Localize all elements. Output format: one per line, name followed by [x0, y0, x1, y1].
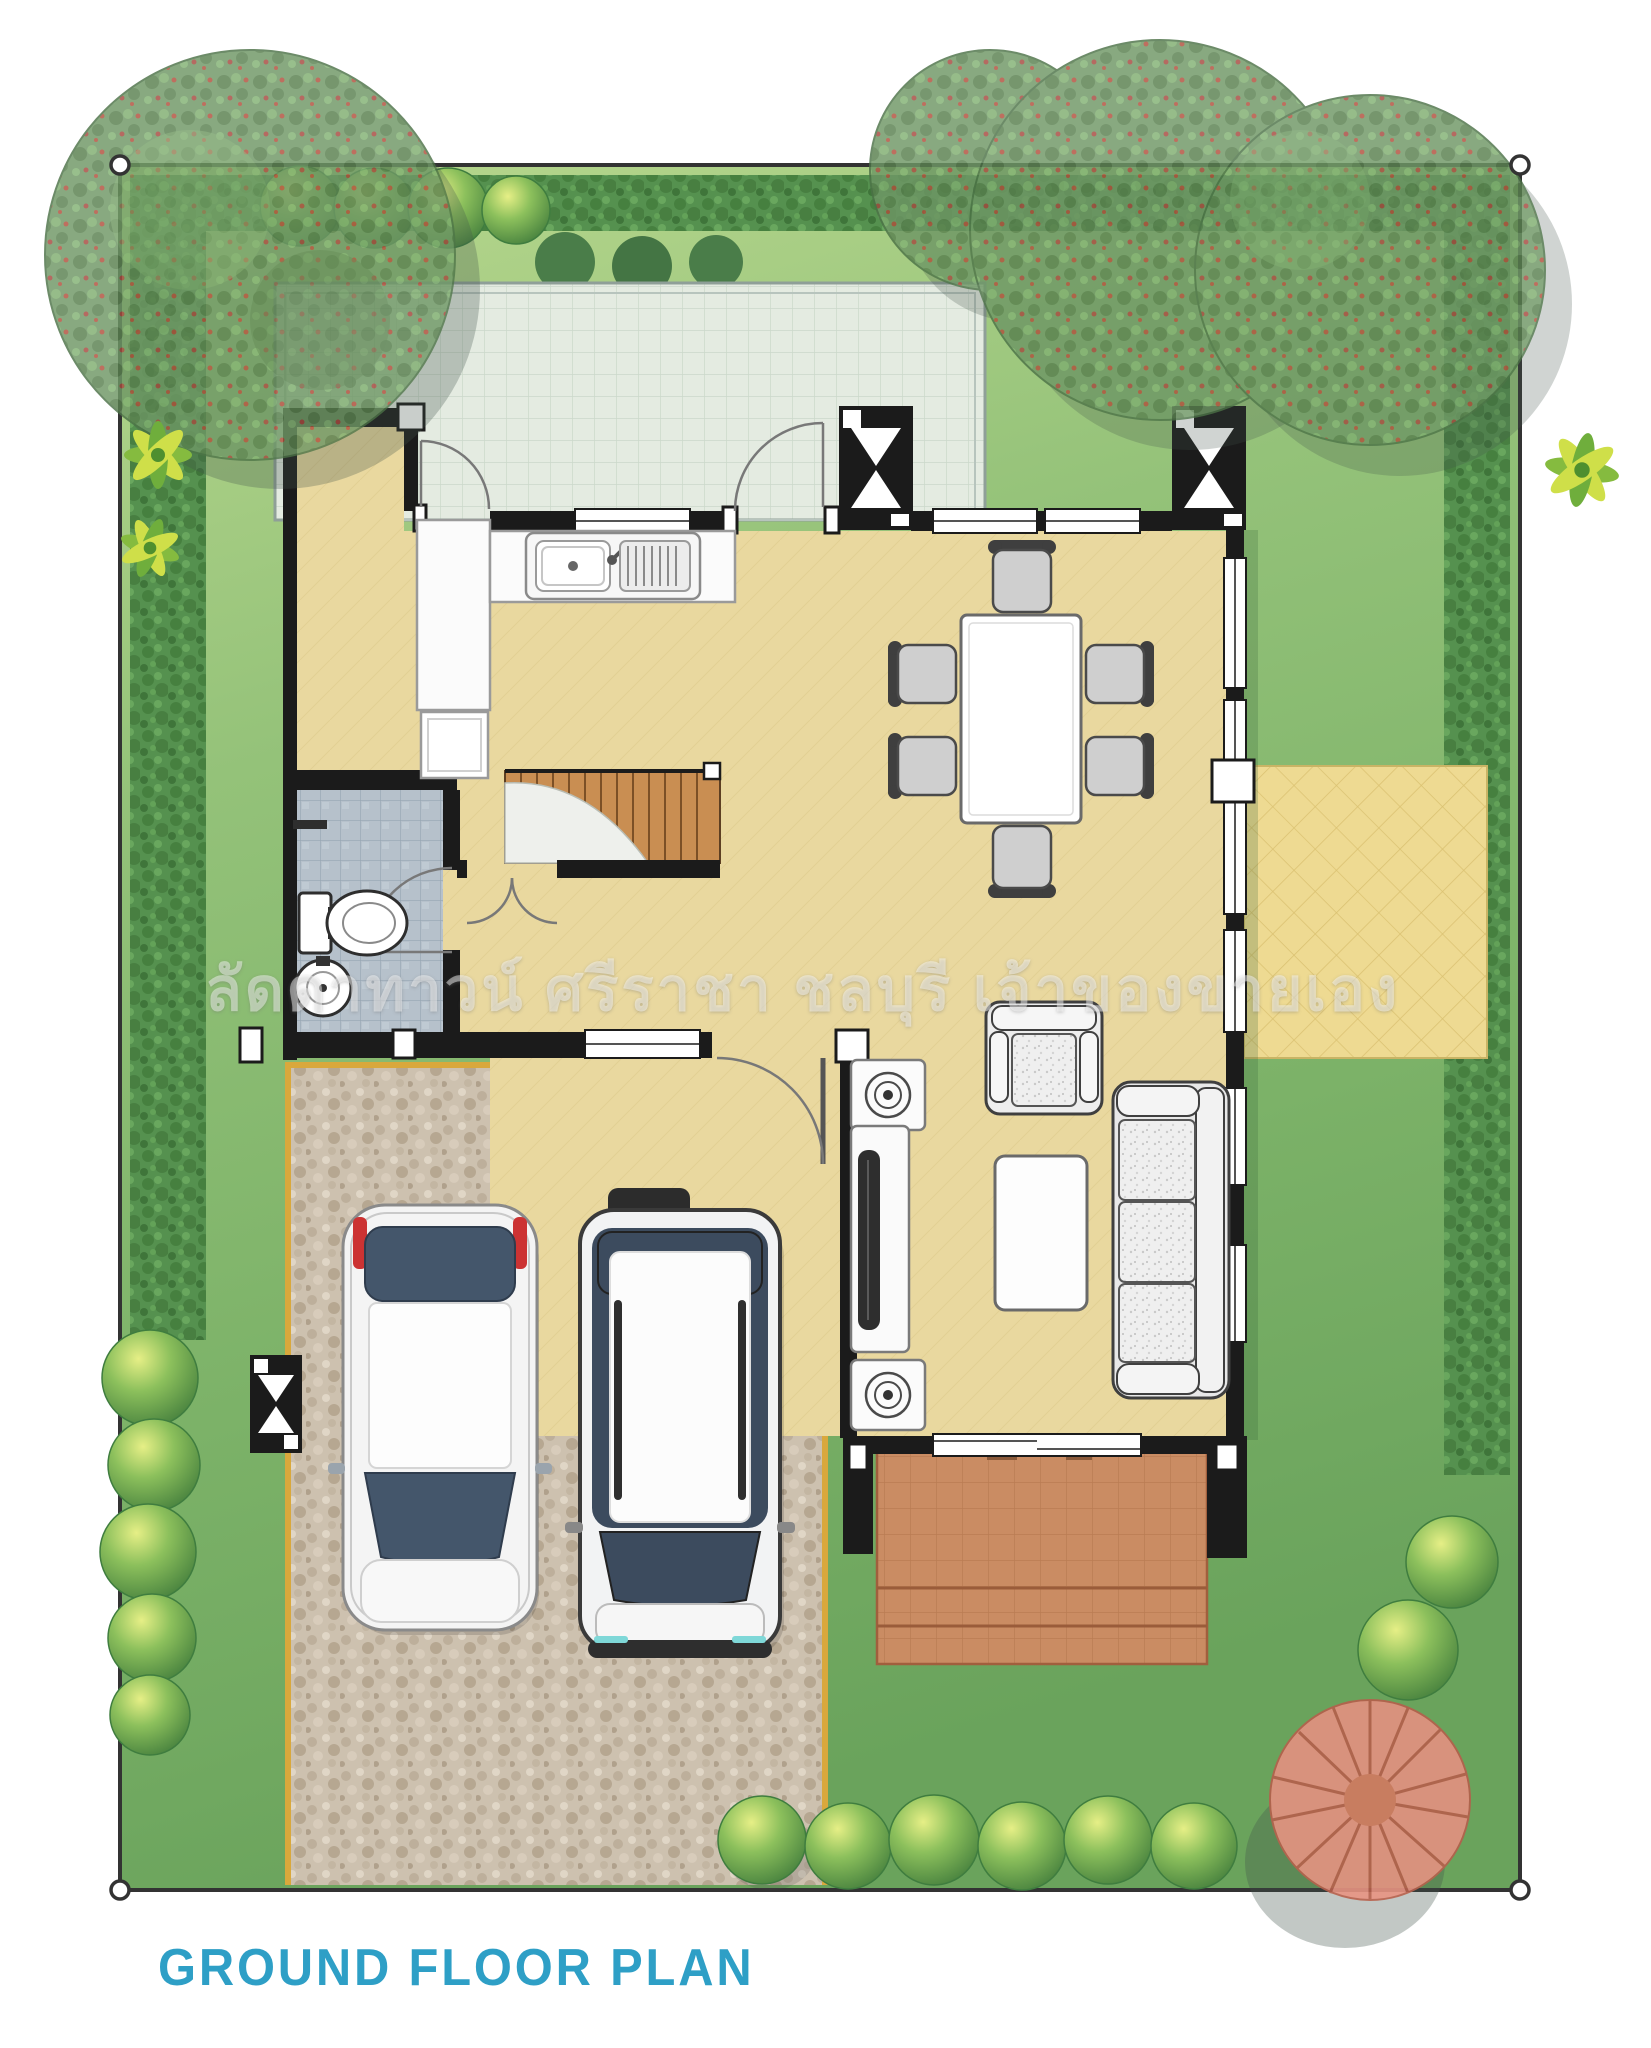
side-mirror-icon	[777, 1522, 795, 1533]
toilet	[299, 891, 407, 955]
armchair	[986, 1002, 1102, 1114]
column-x	[250, 1355, 302, 1453]
window	[575, 509, 690, 533]
sedan-car	[328, 1205, 552, 1635]
dining-chair	[988, 826, 1056, 898]
window	[1224, 930, 1246, 1032]
staircase	[505, 763, 720, 863]
speaker	[851, 1060, 925, 1130]
window	[1224, 700, 1246, 762]
floor-plan-drawing	[0, 0, 1651, 2048]
window	[1224, 558, 1246, 688]
dining-chair	[988, 540, 1056, 612]
flower-cluster-right	[1543, 431, 1620, 508]
sofa	[1113, 1082, 1229, 1398]
side-mirror-icon	[565, 1522, 583, 1533]
window	[1224, 800, 1246, 914]
page-title: GROUND FLOOR PLAN	[158, 1938, 754, 1998]
sliding-door	[933, 1434, 1141, 1456]
column-x	[839, 406, 913, 530]
dining-table	[961, 615, 1081, 823]
floor-plan-page: ลัดดาทาวน์ ศรีราชา ชลบุรี เจ้าของขายเอง …	[0, 0, 1651, 2048]
dish-drainer	[620, 541, 690, 591]
side-patio	[1244, 766, 1487, 1058]
dining-chair	[888, 733, 956, 799]
tv-console	[851, 1126, 909, 1352]
towel-bar-icon	[293, 820, 327, 829]
window	[585, 1030, 700, 1058]
suv-car	[565, 1188, 795, 1658]
kitchen-sink	[526, 533, 700, 599]
flower-cluster-left	[124, 421, 192, 489]
side-mirror-icon	[328, 1463, 345, 1474]
side-mirror-icon	[535, 1463, 552, 1474]
dining-chair	[888, 641, 956, 707]
tree-top-left	[45, 50, 480, 489]
fridge	[421, 712, 488, 778]
kitchen-counter-vertical	[417, 520, 490, 710]
terrace-deck	[877, 1448, 1207, 1664]
window	[1045, 509, 1140, 533]
coffee-table	[995, 1156, 1087, 1310]
dining-chair	[1086, 641, 1154, 707]
speaker	[851, 1360, 925, 1430]
window	[933, 509, 1037, 533]
dining-chair	[1086, 733, 1154, 799]
